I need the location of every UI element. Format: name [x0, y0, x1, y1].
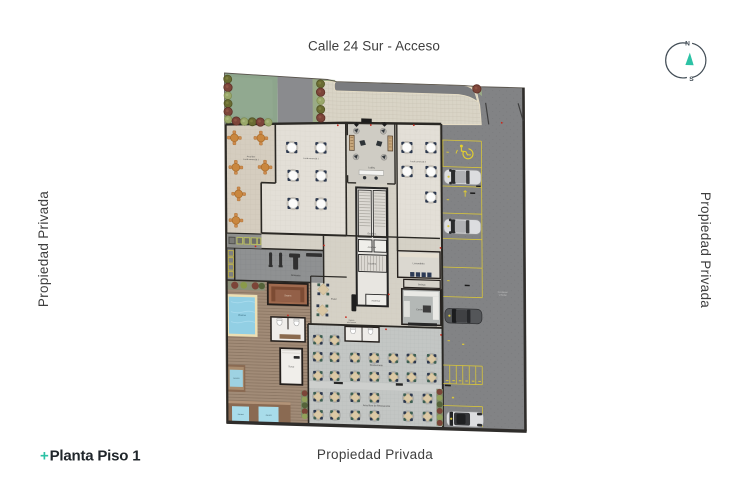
- svg-text:Propiedad Privada: Propiedad Privada: [317, 447, 433, 462]
- svg-text:Jacuzzi: Jacuzzi: [237, 414, 244, 416]
- svg-text:Ascensor: Ascensor: [371, 299, 380, 302]
- svg-text:Bodega: Bodega: [418, 284, 426, 286]
- svg-text:Area libre: Area libre: [247, 155, 256, 158]
- svg-text:Restaurante: Restaurante: [370, 364, 384, 367]
- svg-text:Propiedad Privada: Propiedad Privada: [698, 192, 713, 308]
- svg-text:Gimnasio: Gimnasio: [291, 275, 301, 277]
- svg-text:Lobby: Lobby: [368, 166, 375, 169]
- svg-text:Ascensor: Ascensor: [368, 246, 377, 249]
- svg-text:vehicular: vehicular: [499, 294, 507, 296]
- svg-text:Jacuzzi: Jacuzzi: [265, 415, 272, 417]
- svg-text:Estar: Estar: [331, 298, 337, 301]
- svg-text:Calle 24 Sur - Acceso: Calle 24 Sur - Acceso: [308, 39, 440, 54]
- svg-text:N: N: [685, 41, 690, 48]
- svg-text:Propiedad Privada: Propiedad Privada: [36, 191, 51, 307]
- svg-text:Escalera: Escalera: [368, 262, 377, 265]
- svg-text:area comun: area comun: [347, 321, 356, 324]
- svg-text:Escalera: Escalera: [368, 232, 377, 235]
- svg-text:Jacuzzi: Jacuzzi: [233, 378, 240, 380]
- svg-text:Lavanderia: Lavanderia: [413, 262, 426, 265]
- svg-text:Turco: Turco: [288, 365, 295, 368]
- svg-text:Sauna: Sauna: [284, 294, 292, 297]
- svg-text:+Planta Piso 1: +Planta Piso 1: [40, 448, 140, 465]
- svg-text:Piscina: Piscina: [238, 314, 246, 317]
- svg-text:Cocina: Cocina: [416, 308, 424, 311]
- svg-text:S: S: [689, 76, 694, 83]
